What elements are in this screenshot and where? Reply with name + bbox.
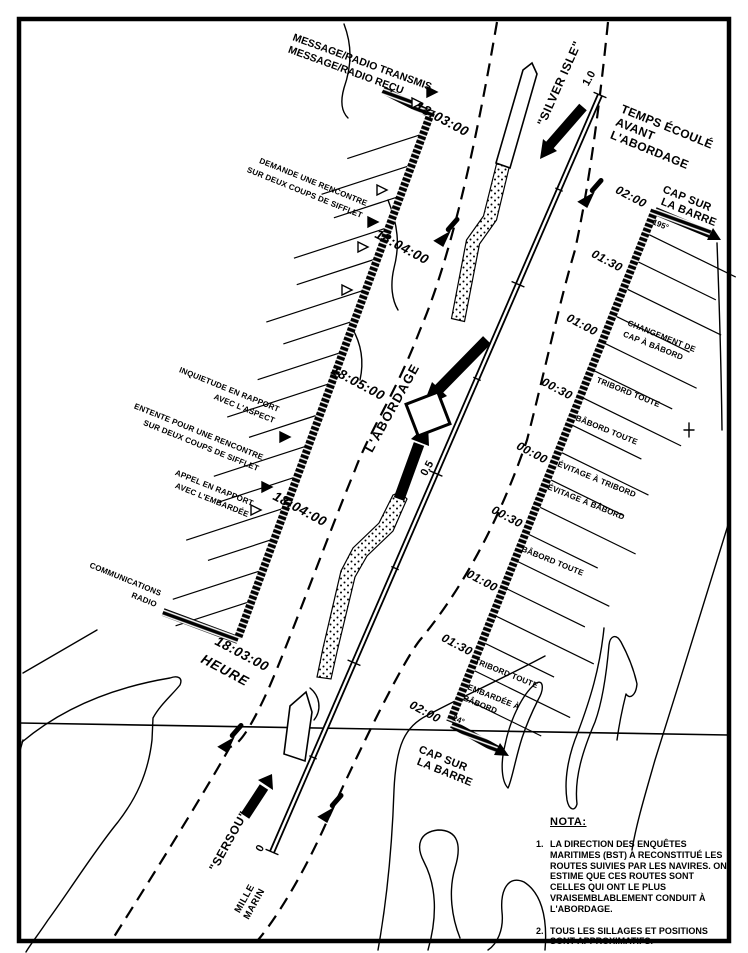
received-marker-icon	[358, 242, 368, 252]
right-time-0: 02:00	[613, 183, 649, 211]
temps-ecoule-header: TEMPS ÉCOULÉ AVANT L'ABORDAGE	[608, 101, 715, 178]
tick-mark	[173, 570, 263, 599]
tick-mark	[266, 290, 366, 323]
silver-isle-wake	[452, 164, 510, 322]
collision-point-square	[406, 392, 450, 436]
tick-mark	[504, 587, 585, 627]
left-band-bottom-crossbar	[163, 612, 238, 640]
annotation-tribord-toute-1: TRIBORD TOUTE	[595, 376, 662, 410]
transmitted-marker-icon	[368, 217, 378, 227]
nota-item-2: 2. TOUS LES SILLAGES ET POSITIONS SONT A…	[536, 926, 728, 948]
sersou-collision-arrow	[399, 444, 419, 499]
annotation-appel-embardee: APPEL EN RAPPORT AVEC L'EMBARDÉE	[169, 468, 255, 519]
silver-isle-collision-arrow	[438, 340, 487, 390]
nota-block: NOTA: 1. LA DIRECTION DES ENQUÊTES MARIT…	[536, 816, 728, 947]
annotation-inquietude-aspect: INQUIETUDE EN RAPPORT AVEC L'ASPECT	[173, 365, 280, 425]
annotation-tribord-toute-2: TRIBORD TOUTE	[473, 657, 540, 691]
right-time-2: 01:00	[564, 311, 600, 339]
annotation-demande-rencontre: DEMANDE UNE RENCONTRE SUR DEUX COUPS DE …	[246, 153, 369, 220]
distance-scale-line	[266, 92, 607, 855]
sersou-hull	[284, 692, 312, 761]
right-time-1: 01:30	[589, 247, 625, 275]
signal-flare-icon	[317, 796, 341, 824]
chart-border-frame	[19, 19, 729, 941]
right-time-3: 00:30	[539, 375, 575, 403]
sersou-name: "SERSOU"	[206, 808, 251, 873]
right-time-8: 02:00	[407, 698, 443, 726]
right-time-6: 01:00	[464, 567, 500, 595]
range-line	[20, 723, 728, 735]
annotation-communications-radio: COMMUNICATIONS RADIO	[84, 561, 163, 609]
right-band-bottom-crossbar	[452, 724, 498, 750]
collision-reconstruction-chart: MESSAGE/RADIO TRANSMIS MESSAGE/RADIO REÇ…	[0, 0, 748, 953]
shore-line-left	[23, 630, 97, 673]
scale-10-label: 1.0	[580, 69, 598, 88]
chart-drawing: MESSAGE/RADIO TRANSMIS MESSAGE/RADIO REÇ…	[0, 0, 748, 953]
nota-item-number: 2.	[536, 926, 546, 948]
nota-item-1: 1. LA DIRECTION DES ENQUÊTES MARITIMES (…	[536, 839, 728, 915]
annotation-babord-toute-2: BÂBORD TOUTE	[520, 545, 585, 578]
nota-item-number: 1.	[536, 839, 546, 915]
transmitted-marker-icon	[280, 432, 290, 442]
cap-sur-la-barre-bottom: CAP SUR LA BARRE	[412, 744, 478, 789]
tick-mark	[635, 260, 716, 300]
transmitted-marker-icon	[262, 482, 272, 492]
tick-mark	[294, 227, 389, 258]
shore-peninsula-left	[22, 677, 181, 952]
received-marker-icon	[342, 285, 352, 295]
scale-tick-marks	[266, 92, 607, 855]
shore-finger-a	[420, 830, 460, 950]
received-marker-icon	[377, 185, 387, 195]
right-timeline-band	[450, 210, 655, 722]
shore-line-upper-right	[717, 243, 722, 430]
right-time-7: 01:30	[439, 631, 475, 659]
annotation-line: COMMUNICATIONS	[88, 561, 163, 598]
scale-0-label: 0	[254, 843, 267, 854]
signal-flare-icon	[577, 181, 601, 209]
left-time-2: 18:05:00	[329, 362, 388, 403]
mille-marin-label: MILLE MARIN	[232, 881, 268, 921]
silver-isle-hull	[496, 63, 537, 168]
sersou-direction-arrow	[245, 774, 273, 816]
tick-mark	[646, 233, 736, 277]
signal-flare-icon	[217, 726, 241, 754]
radio-legend: MESSAGE/RADIO TRANSMIS MESSAGE/RADIO REÇ…	[287, 32, 434, 106]
nota-title: NOTA:	[550, 816, 728, 828]
nota-item-text: LA DIRECTION DES ENQUÊTES MARITIMES (BST…	[550, 839, 728, 915]
right-time-5: 00:30	[489, 503, 525, 531]
annotation-changement-cap: CHANGEMENT DE CAP À BÂBORD	[622, 319, 698, 366]
radio-message-markers	[251, 87, 437, 515]
received-marker-icon	[251, 505, 261, 515]
dashed-route-left	[112, 22, 497, 940]
nota-item-text: TOUS LES SILLAGES ET POSITIONS SONT APPR…	[550, 926, 728, 948]
shore-diagonal-right	[632, 525, 728, 850]
